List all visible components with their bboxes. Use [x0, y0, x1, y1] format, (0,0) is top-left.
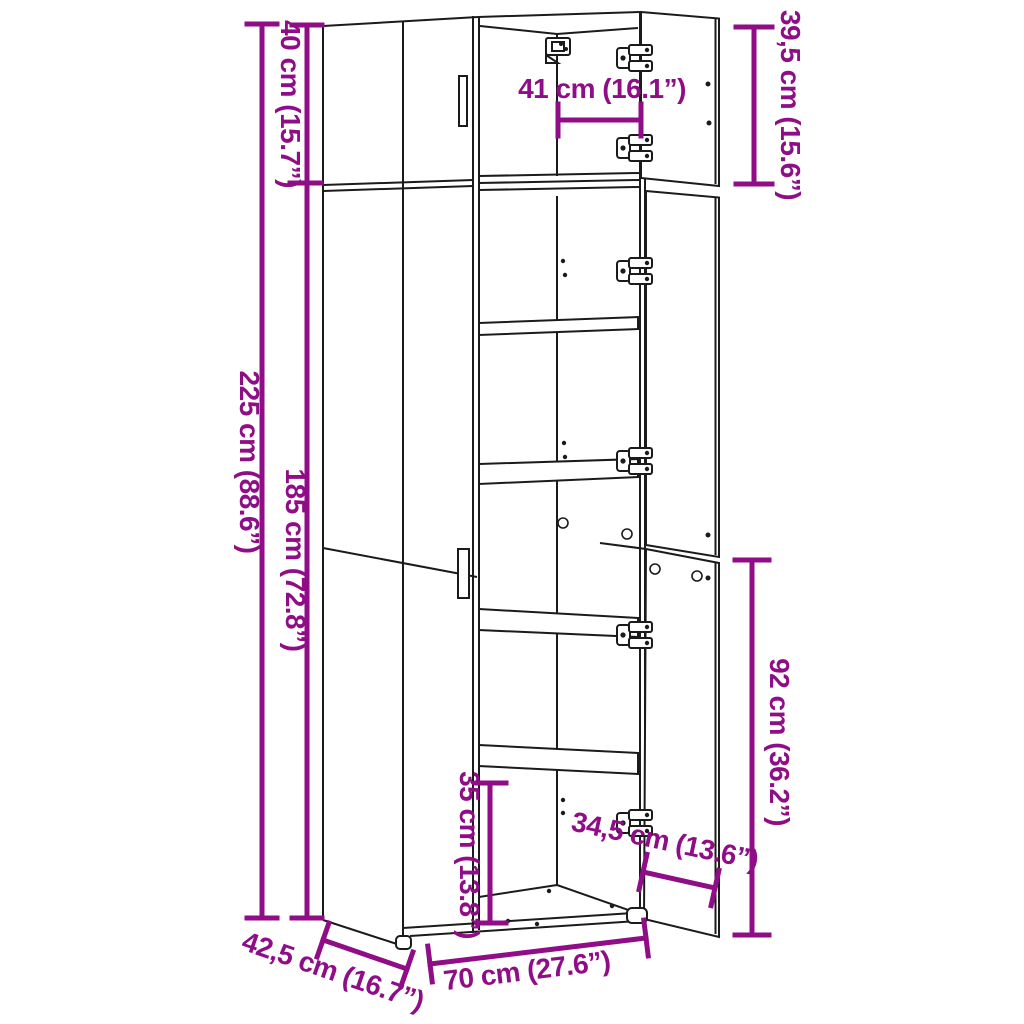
door-hole: [706, 576, 711, 581]
floor-fitting: [535, 922, 539, 926]
shelf: [479, 745, 638, 774]
cam-hole: [558, 518, 568, 528]
shelf: [479, 609, 638, 637]
label-lower-section-height: 185 cm (72.8”): [280, 469, 311, 652]
dimension-labels: 225 cm (88.6”) 40 cm (15.7”) 185 cm (72.…: [234, 10, 806, 1017]
open-upper-door: [646, 191, 719, 557]
dim-lower-door-height: [735, 560, 769, 935]
dim-top-door-height: [736, 27, 772, 184]
shelf-pin-hole: [563, 455, 567, 459]
shelf-pin-hole: [561, 811, 565, 815]
label-lower-door-height: 92 cm (36.2”): [764, 658, 795, 826]
label-interior-width: 41 cm (16.1”): [518, 73, 686, 104]
label-bottom-compartment-height: 35 cm (13.8”): [454, 771, 485, 939]
floor-fitting: [610, 904, 614, 908]
shelf-pin-hole: [561, 259, 565, 263]
door-hole: [706, 533, 711, 538]
shelf: [479, 459, 638, 484]
cabinet-diagram: 225 cm (88.6”) 40 cm (15.7”) 185 cm (72.…: [0, 0, 1024, 1024]
shelf-pin-hole: [562, 441, 566, 445]
cam-hole: [650, 564, 660, 574]
cabinet-drawing: [323, 12, 719, 949]
cam-hole: [622, 529, 632, 539]
label-top-section-height: 40 cm (15.7”): [275, 20, 306, 188]
top-door-handle: [459, 76, 467, 126]
cam-hole: [692, 571, 702, 581]
dim-interior-width: [558, 104, 641, 136]
cabinet-foot: [396, 936, 411, 949]
shelf-pin-hole: [563, 273, 567, 277]
label-top-door-height: 39,5 cm (15.6”): [775, 10, 806, 200]
label-total-height: 225 cm (88.6”): [234, 371, 265, 554]
floor-fitting: [547, 889, 551, 893]
product-dimension-image: 225 cm (88.6”) 40 cm (15.7”) 185 cm (72.…: [0, 0, 1024, 1024]
door-hole: [706, 82, 711, 87]
shelf-pin-hole: [561, 798, 565, 802]
main-door-handle: [458, 549, 469, 598]
door-hole: [707, 121, 712, 126]
shelf: [479, 317, 638, 335]
